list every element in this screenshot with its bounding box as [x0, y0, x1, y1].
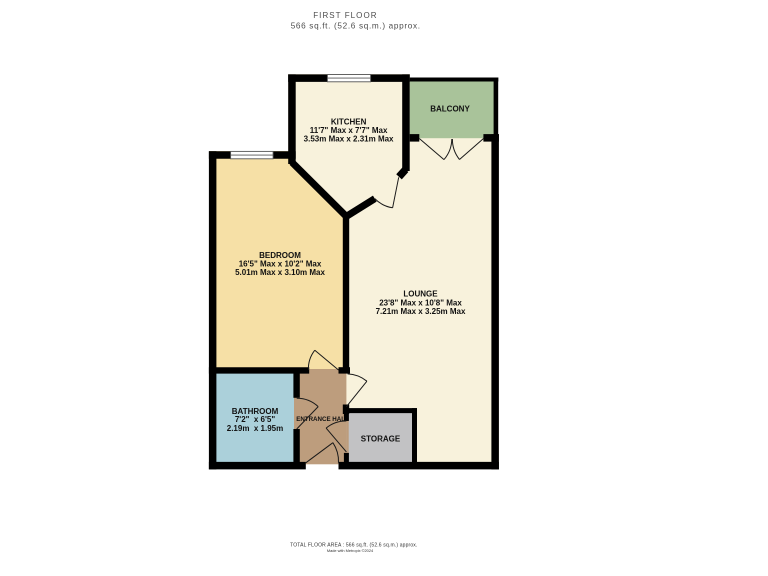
svg-text:566 sq.ft. (52.6 sq.m.) approx: 566 sq.ft. (52.6 sq.m.) approx.	[291, 21, 421, 30]
svg-text:5.01m Max x 3.10m Max: 5.01m Max x 3.10m Max	[235, 268, 325, 277]
svg-text:LOUNGE: LOUNGE	[403, 290, 438, 299]
svg-text:STORAGE: STORAGE	[361, 434, 401, 443]
svg-text:Made with Metropix ©2024: Made with Metropix ©2024	[327, 548, 374, 553]
svg-text:2.19m x 1.95m: 2.19m x 1.95m	[227, 424, 283, 433]
svg-text:BALCONY: BALCONY	[430, 105, 470, 114]
svg-text:FIRST FLOOR: FIRST FLOOR	[313, 11, 377, 20]
svg-text:7.21m Max x 3.25m Max: 7.21m Max x 3.25m Max	[376, 307, 466, 316]
svg-text:3.53m Max x 2.31m Max: 3.53m Max x 2.31m Max	[304, 135, 394, 144]
svg-text:7'2" x 6'5": 7'2" x 6'5"	[235, 415, 276, 424]
